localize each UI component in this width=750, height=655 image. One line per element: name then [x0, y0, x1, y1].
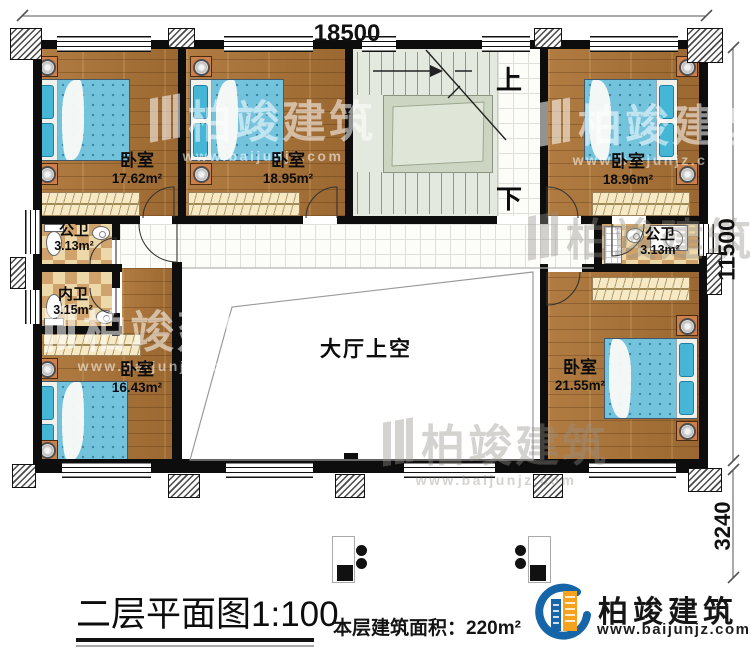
stair-up-label: 上 — [496, 60, 522, 97]
plan-title-text: 二层平面图 — [76, 595, 251, 634]
dimension-top: 18500 — [297, 20, 397, 48]
door-arc — [547, 272, 580, 305]
room-area: 18.95m² — [248, 171, 328, 187]
page-title: 二层平面图1:100 — [76, 586, 339, 637]
room-area: 3.13m² — [43, 239, 105, 253]
door-arc — [306, 187, 337, 218]
floor-area-note: 本层建筑面积：220m² — [333, 613, 521, 640]
room-name: 卧室 — [588, 152, 668, 172]
room-label: 卧室 18.95m² — [248, 151, 328, 186]
room-label: 公卫 3.13m² — [43, 222, 105, 254]
door-arc — [139, 224, 177, 262]
room-area: 3.15m² — [42, 303, 104, 317]
room-area: 21.55m² — [540, 378, 620, 394]
door-arc — [547, 187, 578, 218]
room-name: 卧室 — [540, 358, 620, 378]
room-label: 公卫 3.13m² — [625, 226, 695, 258]
floor-area-label: 本层建筑面积： — [333, 618, 466, 639]
room-area: 16.43m² — [97, 380, 177, 396]
room-name: 卧室 — [97, 151, 177, 171]
room-name: 内卫 — [42, 286, 104, 303]
section-marker-dot — [356, 558, 367, 569]
dimension-right-lower: 3240 — [710, 497, 736, 555]
room-area: 17.62m² — [97, 171, 177, 187]
room-name: 卧室 — [248, 151, 328, 171]
dimension-lines — [17, 10, 739, 583]
section-marker-square — [530, 565, 546, 581]
stair-down-label: 下 — [496, 179, 522, 216]
company-logo-icon — [531, 583, 593, 649]
door-arc — [143, 187, 174, 218]
room-name: 公卫 — [43, 222, 105, 239]
company-logo-url: www.baijunjz.com — [597, 621, 750, 638]
section-marker-dot — [515, 545, 526, 556]
section-marker-dot — [515, 558, 526, 569]
floor-area-value: 220m² — [466, 618, 521, 639]
floorplan-page: 柏竣建筑 www.baijunjz.com 柏竣建筑 www.baijunjz.… — [0, 0, 750, 655]
company-logo — [531, 583, 593, 649]
title-underline — [76, 638, 314, 642]
room-name: 公卫 — [625, 226, 695, 243]
room-label: 大厅上空 — [306, 338, 426, 362]
hall-void-outline — [190, 272, 533, 460]
room-label: 卧室 18.96m² — [588, 152, 668, 187]
room-area: 3.13m² — [625, 243, 695, 257]
stair-direction-arrow — [373, 50, 506, 140]
room-name: 卧室 — [97, 360, 177, 380]
room-label: 卧室 17.62m² — [97, 151, 177, 186]
room-area: 18.96m² — [588, 172, 668, 188]
room-name: 大厅上空 — [306, 338, 426, 362]
room-label: 卧室 21.55m² — [540, 358, 620, 393]
plan-linework — [0, 0, 750, 655]
plan-scale-text: 1:100 — [251, 595, 339, 634]
title-underline-thin — [76, 645, 314, 647]
dimension-right-upper: 11500 — [714, 214, 741, 286]
room-label: 内卫 3.15m² — [42, 286, 104, 318]
room-label: 卧室 16.43m² — [97, 360, 177, 395]
section-marker-dot — [356, 545, 367, 556]
section-marker-square — [337, 565, 353, 581]
